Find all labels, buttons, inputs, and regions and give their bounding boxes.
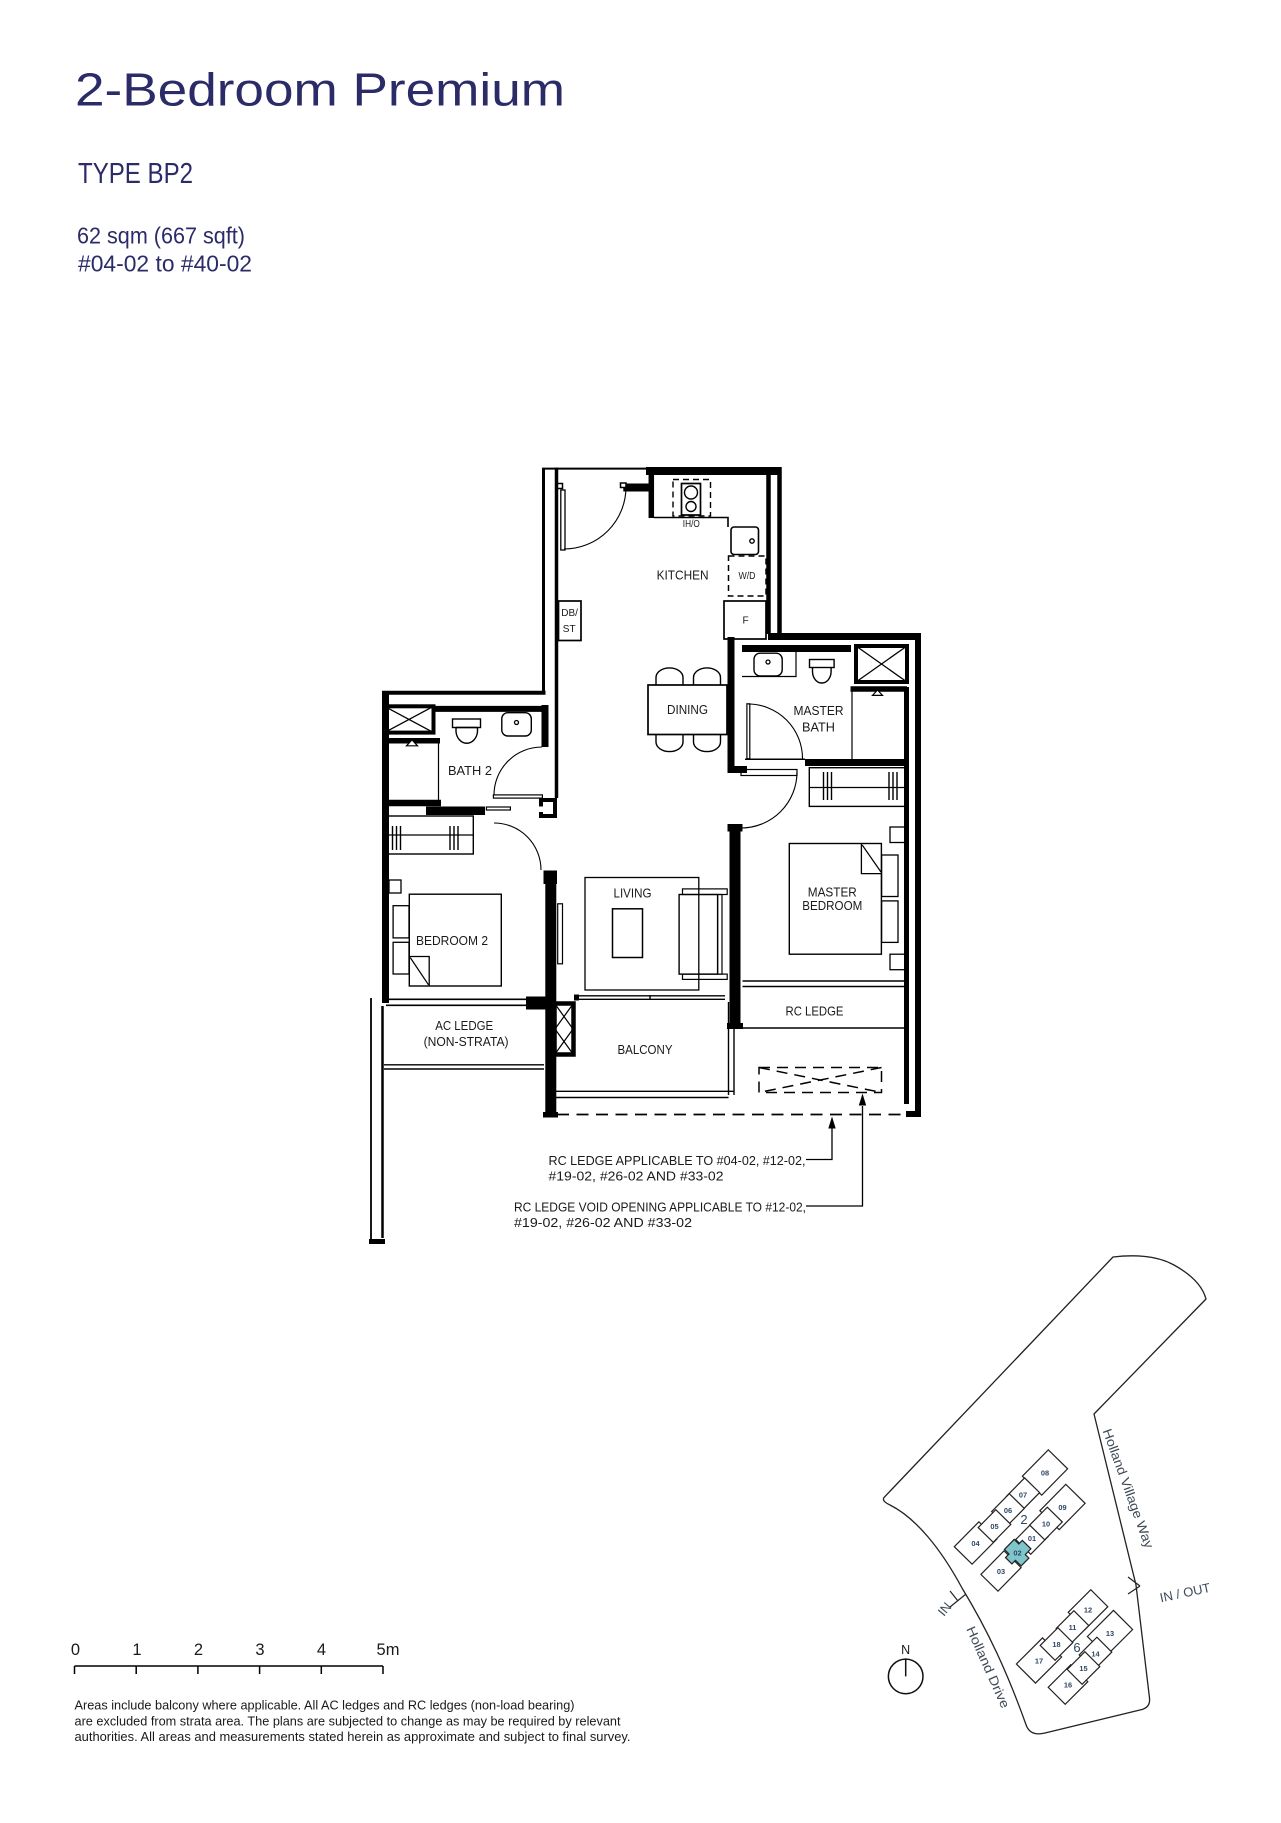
svg-text:are excluded from strata area.: are excluded from strata area. The plans… xyxy=(75,1714,622,1728)
svg-text:05: 05 xyxy=(990,1522,998,1531)
svg-text:10: 10 xyxy=(1042,1520,1050,1529)
svg-text:authorities. All areas and mea: authorities. All areas and measurements … xyxy=(75,1730,631,1744)
svg-text:ST: ST xyxy=(563,624,576,635)
svg-text:Holland Drive: Holland Drive xyxy=(963,1624,1012,1710)
svg-text:DB/: DB/ xyxy=(561,608,578,619)
svg-text:06: 06 xyxy=(1004,1506,1012,1515)
svg-text:6: 6 xyxy=(1073,1640,1080,1655)
svg-text:1: 1 xyxy=(132,1641,141,1659)
svg-text:5m: 5m xyxy=(377,1641,400,1659)
svg-text:RC LEDGE VOID OPENING APPLICAB: RC LEDGE VOID OPENING APPLICABLE TO #12-… xyxy=(514,1201,806,1215)
svg-text:IN: IN xyxy=(935,1599,955,1619)
svg-text:BALCONY: BALCONY xyxy=(618,1042,673,1057)
svg-text:09: 09 xyxy=(1058,1503,1066,1512)
svg-text:F: F xyxy=(743,616,749,627)
svg-text:#04-02 to #40-02: #04-02 to #40-02 xyxy=(78,251,252,277)
svg-text:RC LEDGE APPLICABLE TO #04-02,: RC LEDGE APPLICABLE TO #04-02, #12-02, xyxy=(549,1154,806,1168)
svg-text:16: 16 xyxy=(1064,1681,1072,1690)
svg-text:BEDROOM: BEDROOM xyxy=(802,898,862,913)
svg-text:4: 4 xyxy=(317,1641,326,1659)
svg-text:MASTER: MASTER xyxy=(794,703,844,718)
svg-text:04: 04 xyxy=(971,1539,980,1548)
svg-text:KITCHEN: KITCHEN xyxy=(657,568,709,583)
svg-text:2-Bedroom Premium: 2-Bedroom Premium xyxy=(75,64,565,116)
svg-text:IN / OUT: IN / OUT xyxy=(1158,1580,1211,1605)
svg-text:3: 3 xyxy=(255,1641,264,1659)
svg-text:RC LEDGE: RC LEDGE xyxy=(786,1004,844,1019)
svg-text:BEDROOM 2: BEDROOM 2 xyxy=(416,933,488,948)
svg-text:11: 11 xyxy=(1069,1623,1077,1632)
svg-text:W/D: W/D xyxy=(739,571,756,582)
svg-text:03: 03 xyxy=(997,1567,1005,1576)
svg-text:18: 18 xyxy=(1052,1640,1060,1649)
svg-text:08: 08 xyxy=(1041,1469,1049,1478)
svg-text:#19-02, #26-02 AND #33-02: #19-02, #26-02 AND #33-02 xyxy=(549,1170,724,1184)
svg-text:2: 2 xyxy=(1020,1512,1027,1527)
svg-text:2: 2 xyxy=(194,1641,203,1659)
svg-text:IH/O: IH/O xyxy=(683,519,700,530)
svg-text:(NON-STRATA): (NON-STRATA) xyxy=(424,1034,509,1049)
svg-text:BATH: BATH xyxy=(802,719,835,734)
svg-text:01: 01 xyxy=(1028,1534,1036,1543)
svg-text:62 sqm (667 sqft): 62 sqm (667 sqft) xyxy=(77,223,245,249)
svg-text:LIVING: LIVING xyxy=(614,886,652,901)
svg-text:Holland Village Way: Holland Village Way xyxy=(1100,1427,1157,1551)
svg-text:0: 0 xyxy=(71,1641,80,1659)
svg-text:12: 12 xyxy=(1084,1606,1092,1615)
svg-text:N: N xyxy=(901,1643,910,1657)
svg-text:BATH 2: BATH 2 xyxy=(448,763,492,778)
svg-text:13: 13 xyxy=(1106,1629,1114,1638)
svg-text:15: 15 xyxy=(1079,1664,1087,1673)
svg-text:Areas include balcony where ap: Areas include balcony where applicable. … xyxy=(75,1699,575,1713)
svg-text:14: 14 xyxy=(1091,1650,1100,1659)
svg-text:17: 17 xyxy=(1035,1657,1043,1666)
svg-text:#19-02, #26-02 AND #33-02: #19-02, #26-02 AND #33-02 xyxy=(514,1216,692,1230)
svg-text:TYPE BP2: TYPE BP2 xyxy=(78,158,193,190)
svg-text:DINING: DINING xyxy=(667,702,708,717)
svg-text:07: 07 xyxy=(1019,1491,1027,1500)
svg-text:02: 02 xyxy=(1013,1549,1021,1558)
svg-text:AC LEDGE: AC LEDGE xyxy=(435,1018,493,1033)
